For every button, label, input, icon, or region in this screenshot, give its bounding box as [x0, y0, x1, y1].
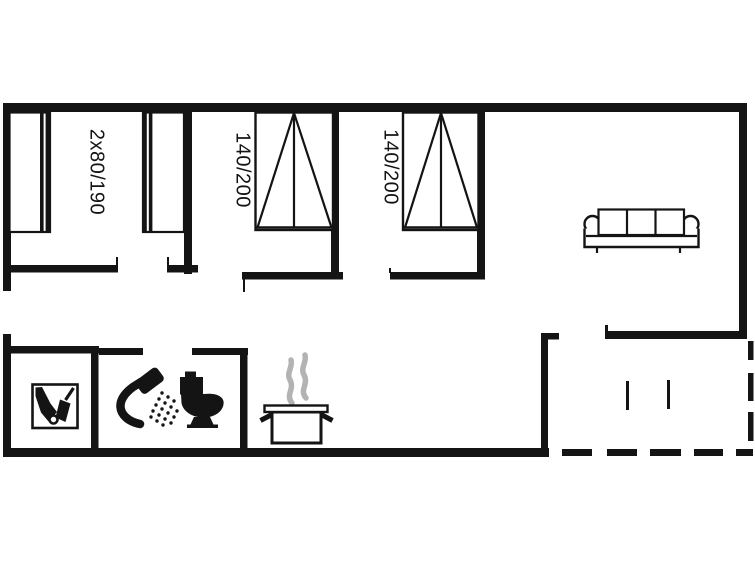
- toilet-cap: [185, 372, 196, 378]
- door-jamb: [116, 257, 118, 265]
- door-jamb: [167, 257, 169, 265]
- single-bed-icon: [10, 113, 51, 233]
- pot-handle: [261, 415, 273, 421]
- terrace-dash: [650, 449, 681, 456]
- terrace-dash: [607, 449, 637, 456]
- bed-size-label: 140/200: [380, 129, 402, 205]
- terrace-dashed-boundary: [562, 373, 754, 456]
- double-bed-icon: [256, 113, 334, 231]
- terrace-top-stub: [541, 333, 559, 340]
- living-bottom-wall: [605, 331, 747, 339]
- terrace-mark: [626, 381, 629, 410]
- pot-rim: [265, 406, 328, 413]
- floor-plan-drawing: 2x80/190 140/200 140/200: [0, 0, 755, 566]
- shower-icon: [120, 366, 178, 427]
- sofa-back-cushions: [599, 210, 685, 236]
- vacuum-wheel: [50, 416, 58, 424]
- walls: [3, 103, 754, 457]
- steam-icon: [303, 355, 306, 398]
- shower-spray: [149, 391, 178, 426]
- bedroom-1: 2x80/190: [10, 113, 185, 233]
- toilet-base: [187, 425, 218, 429]
- toilet-bowl: [181, 394, 224, 418]
- terrace-dash: [736, 449, 753, 456]
- door-jamb: [243, 279, 245, 292]
- toilet-icon: [180, 372, 224, 429]
- terrace-dash: [748, 373, 754, 401]
- shower-hose: [120, 382, 141, 424]
- door-jamb: [389, 268, 391, 273]
- storage-right-wall: [91, 346, 99, 452]
- kitchen-area: [261, 355, 333, 443]
- partition-bed1-bed2: [184, 110, 192, 274]
- bed-edge-line: [46, 113, 50, 232]
- terrace-dash: [694, 449, 723, 456]
- sofa-icon: [585, 210, 699, 254]
- bed-edge-line: [149, 113, 153, 232]
- wall-top: [3, 103, 747, 112]
- pot-handle: [321, 415, 333, 421]
- bed-outline: [10, 113, 51, 233]
- terrace-dash: [748, 412, 754, 441]
- bed-size-label: 2x80/190: [86, 129, 108, 215]
- floor-plan: 2x80/190 140/200 140/200: [0, 0, 755, 566]
- toilet-pedestal: [190, 417, 214, 426]
- wall-bottom: [3, 448, 549, 457]
- door-jamb: [605, 325, 608, 332]
- bathroom-top-wall-right: [192, 348, 248, 355]
- bedroom-2: 140/200: [232, 113, 333, 231]
- storage-room: [33, 385, 78, 429]
- double-bed-icon: [403, 113, 479, 231]
- storage-top-wall: [3, 346, 99, 354]
- bed-size-label: 140/200: [232, 132, 254, 208]
- bathroom: [120, 366, 223, 428]
- terrace-mark: [667, 380, 670, 409]
- bedroom1-bottom-wall: [3, 265, 118, 273]
- wall-right: [739, 103, 747, 339]
- bedroom2-bottom-wall: [242, 272, 343, 280]
- shower-head: [134, 366, 165, 395]
- bathroom-top-wall-left: [99, 348, 143, 355]
- terrace-left-wall: [541, 333, 548, 452]
- bedroom3-bottom-wall: [390, 272, 485, 280]
- toilet-tank: [180, 377, 203, 395]
- bathroom-right-wall: [240, 348, 248, 452]
- bed-edge-line: [40, 113, 44, 232]
- steam-icon: [289, 360, 292, 403]
- vacuum-cleaner-icon: [33, 385, 78, 429]
- bedroom1-bottom-wall-mid: [167, 265, 198, 273]
- terrace-dash: [562, 449, 592, 456]
- single-bed-icon: [143, 113, 184, 233]
- bedroom-3: 140/200: [380, 113, 479, 231]
- pot-body: [272, 412, 321, 443]
- cooking-pot-icon: [261, 406, 333, 444]
- bed-edge-line: [143, 113, 147, 232]
- wall-right-lower-stub: [748, 341, 754, 360]
